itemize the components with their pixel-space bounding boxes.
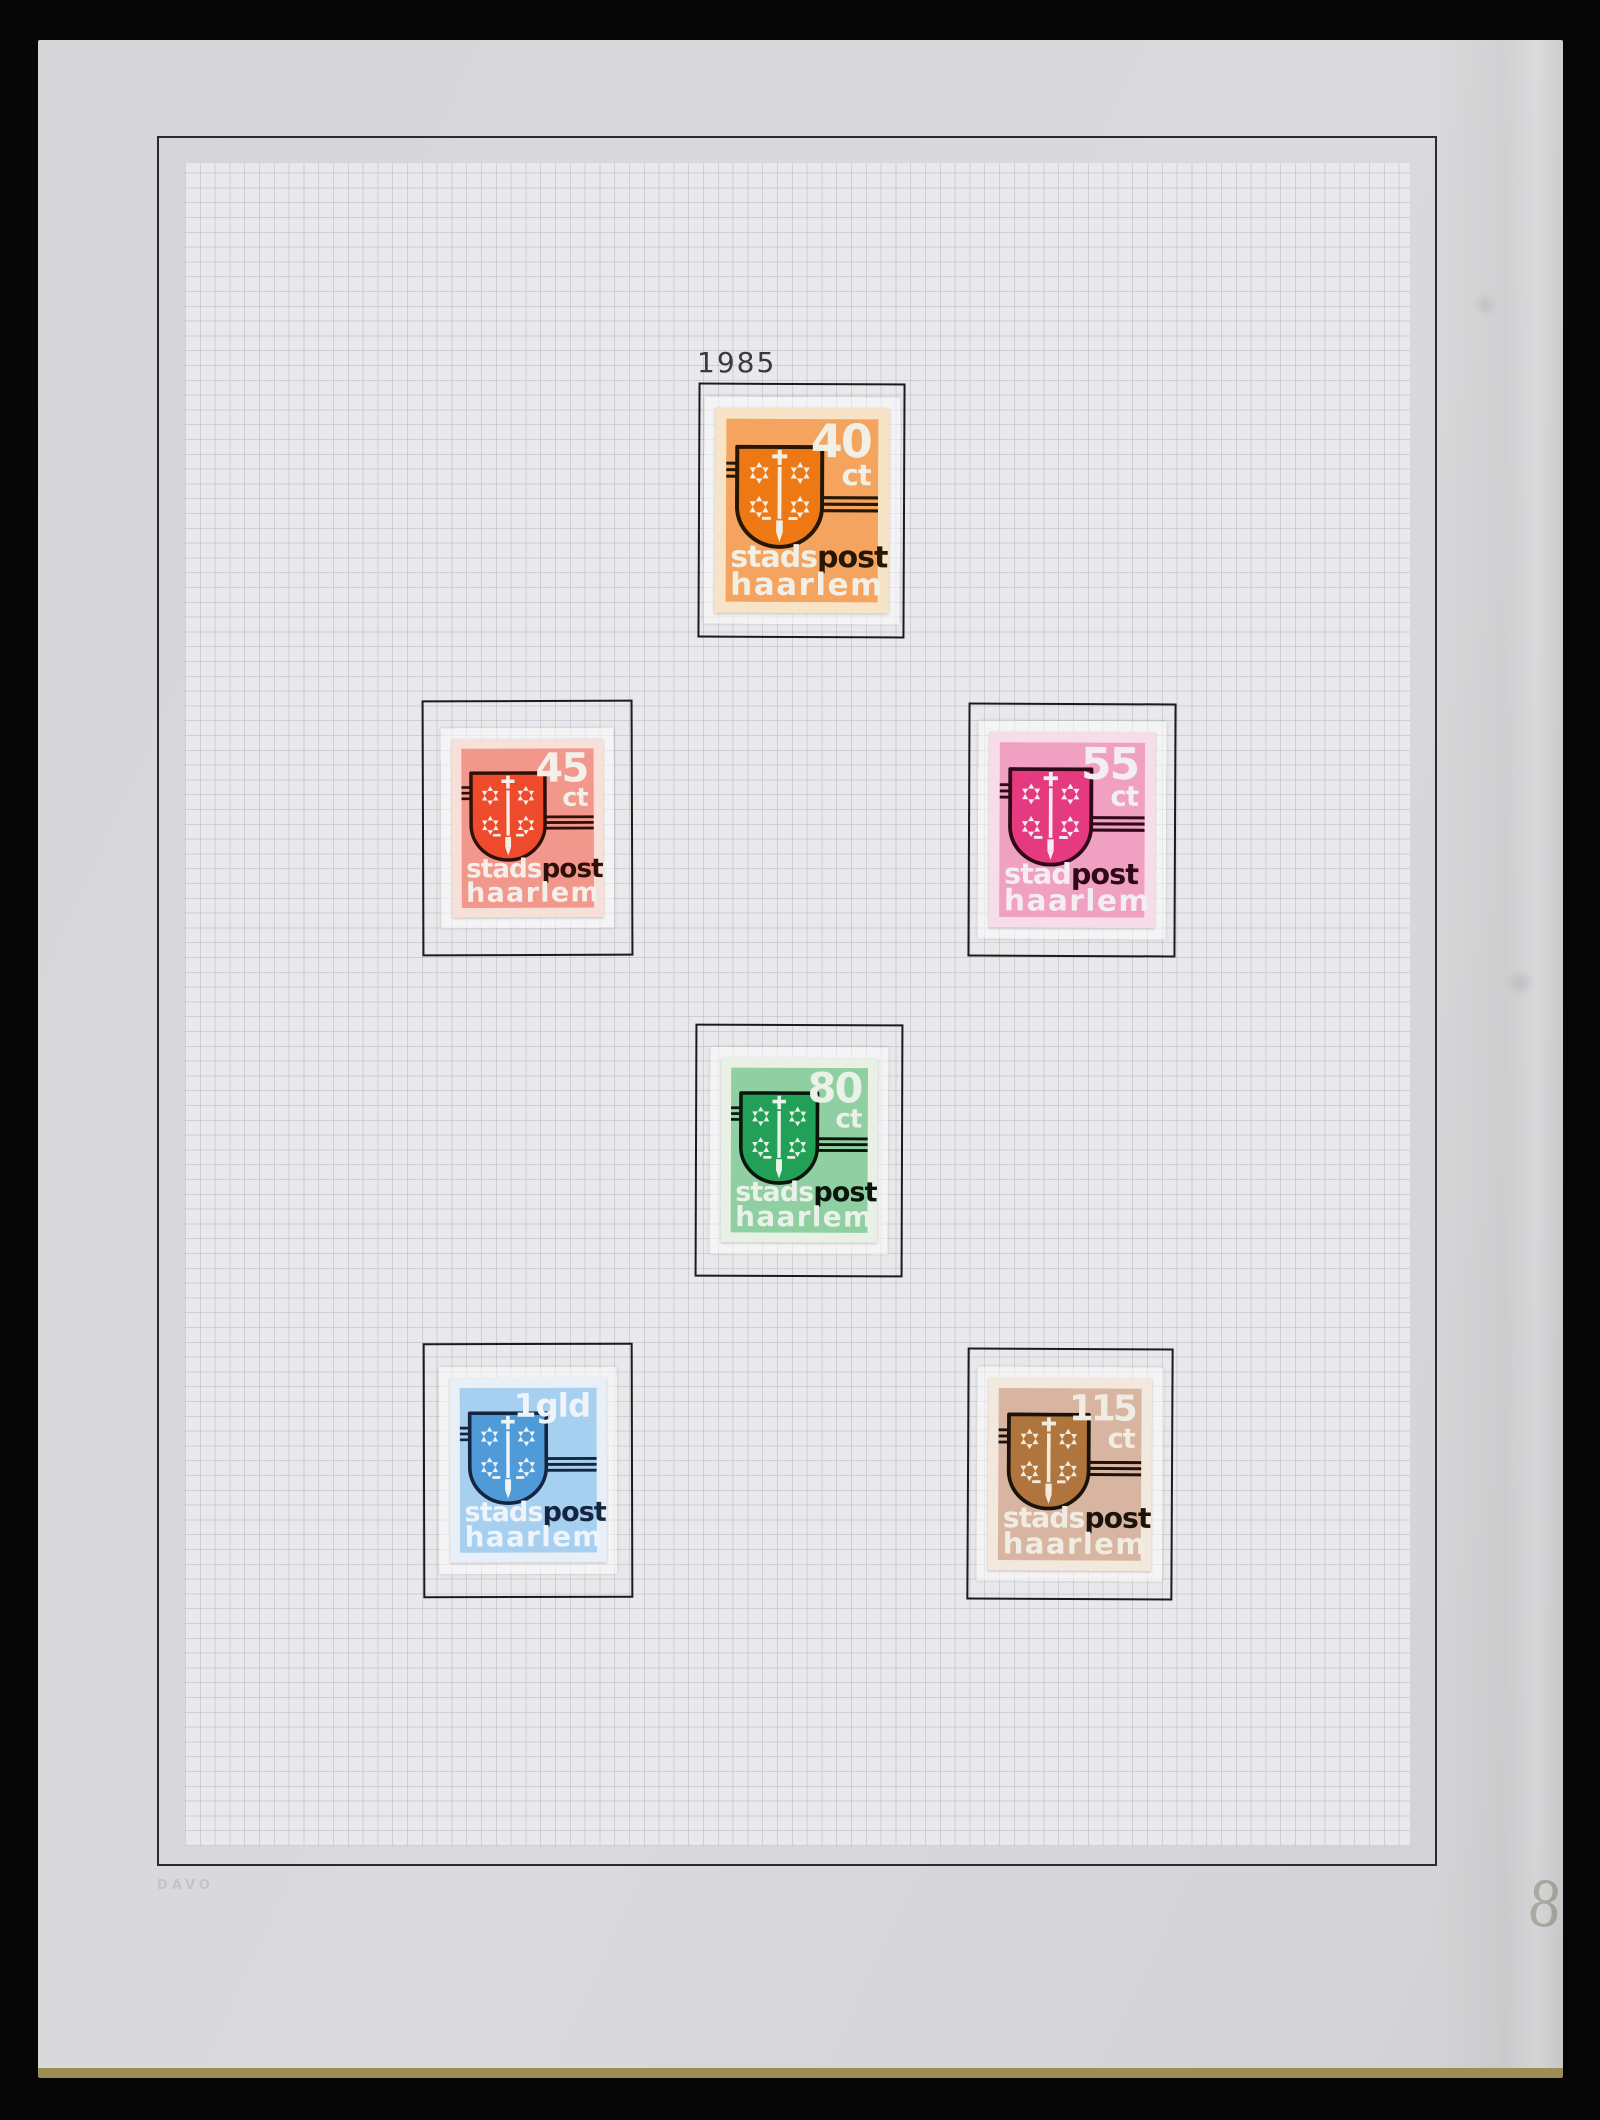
inscription-haarlem: haarlem [1004,888,1143,914]
album-brand-label: DAVO [157,1878,214,1893]
stamp-inscription: stadpost haarlem [1004,862,1143,915]
stamp-print-area: 40 ct stadspost haarlem [725,419,878,603]
denomination-value: 40 [811,423,871,460]
denomination: 80 ct [807,1072,861,1131]
stamp-frame-1gld: 1gld stadspost haarlem [423,1343,634,1599]
stamp-print-area: 45 ct stadspost haarlem [461,748,594,908]
stamp-mount: 45 ct stadspost haarlem [440,728,614,929]
denomination: 55 ct [1081,746,1139,808]
stamp-mount: 1gld stadspost haarlem [438,1367,617,1574]
inscription-haarlem: haarlem [735,1206,866,1231]
denomination: 1gld [513,1392,590,1425]
year-label: 1985 [697,346,776,379]
inscription-haarlem: haarlem [466,881,592,905]
denomination: 115 ct [1069,1392,1135,1451]
stamp-mount: 115 ct stadspost haarlem [977,1366,1164,1582]
denomination: 45 ct [535,752,587,809]
stamp-1gld: 1gld stadspost haarlem [449,1378,606,1563]
stamp-40ct: 40 ct stadspost haarlem [714,408,889,614]
photo-backdrop: 1985 40 ct stadspost haar [0,0,1600,2120]
haarlem-coat-of-arms [459,1411,596,1507]
stamp-print-area: 115 ct stadspost haarlem [998,1388,1142,1561]
denomination-value: 55 [1081,746,1138,782]
stamp-inscription: stadspost haarlem [464,1500,595,1550]
stamp-55ct: 55 ct stadpost haarlem [988,732,1155,928]
stamp-frame-115ct: 115 ct stadspost haarlem [966,1347,1173,1600]
denomination-value: 45 [535,752,587,784]
stamp-frame-40ct: 40 ct stadspost haarlem [697,383,905,639]
stamp-80ct: 80 ct stadspost haarlem [720,1058,877,1243]
stamp-print-area: 80 ct stadspost haarlem [730,1068,867,1233]
denomination-value: 115 [1069,1392,1135,1424]
stamp-inscription: stadspost haarlem [735,1180,866,1230]
denomination-value: 1gld [513,1392,590,1423]
stamp-inscription: stadspost haarlem [1003,1505,1140,1557]
paper-blemish [1473,292,1499,318]
stamp-print-area: 55 ct stadpost haarlem [999,742,1145,917]
stamp-115ct: 115 ct stadspost haarlem [988,1377,1153,1571]
stamp-frame-80ct: 80 ct stadspost haarlem [695,1024,904,1278]
handwritten-page-number: 8 [1525,1867,1565,1943]
stamp-inscription: stadspost haarlem [730,544,875,600]
denomination-value: 80 [807,1072,861,1105]
stamp-mount: 40 ct stadspost haarlem [703,397,900,625]
stamp-45ct: 45 ct stadspost haarlem [452,739,604,918]
paper-blemish [1505,968,1535,998]
inscription-haarlem: haarlem [464,1526,595,1551]
inscription-haarlem: haarlem [730,572,875,600]
stamp-mount: 55 ct stadpost haarlem [977,721,1166,940]
stamp-inscription: stadspost haarlem [466,857,592,905]
inscription-haarlem: haarlem [1003,1531,1139,1557]
denomination: 40 ct [811,423,871,488]
stamp-print-area: 1gld stadspost haarlem [459,1388,596,1553]
album-page: 1985 40 ct stadspost haar [38,40,1563,2078]
stamp-frame-55ct: 55 ct stadpost haarlem [967,703,1176,958]
denomination-unit: ct [1069,1426,1135,1451]
stamp-frame-45ct: 45 ct stadspost haarlem [422,700,634,957]
stamp-mount: 80 ct stadspost haarlem [709,1047,888,1254]
